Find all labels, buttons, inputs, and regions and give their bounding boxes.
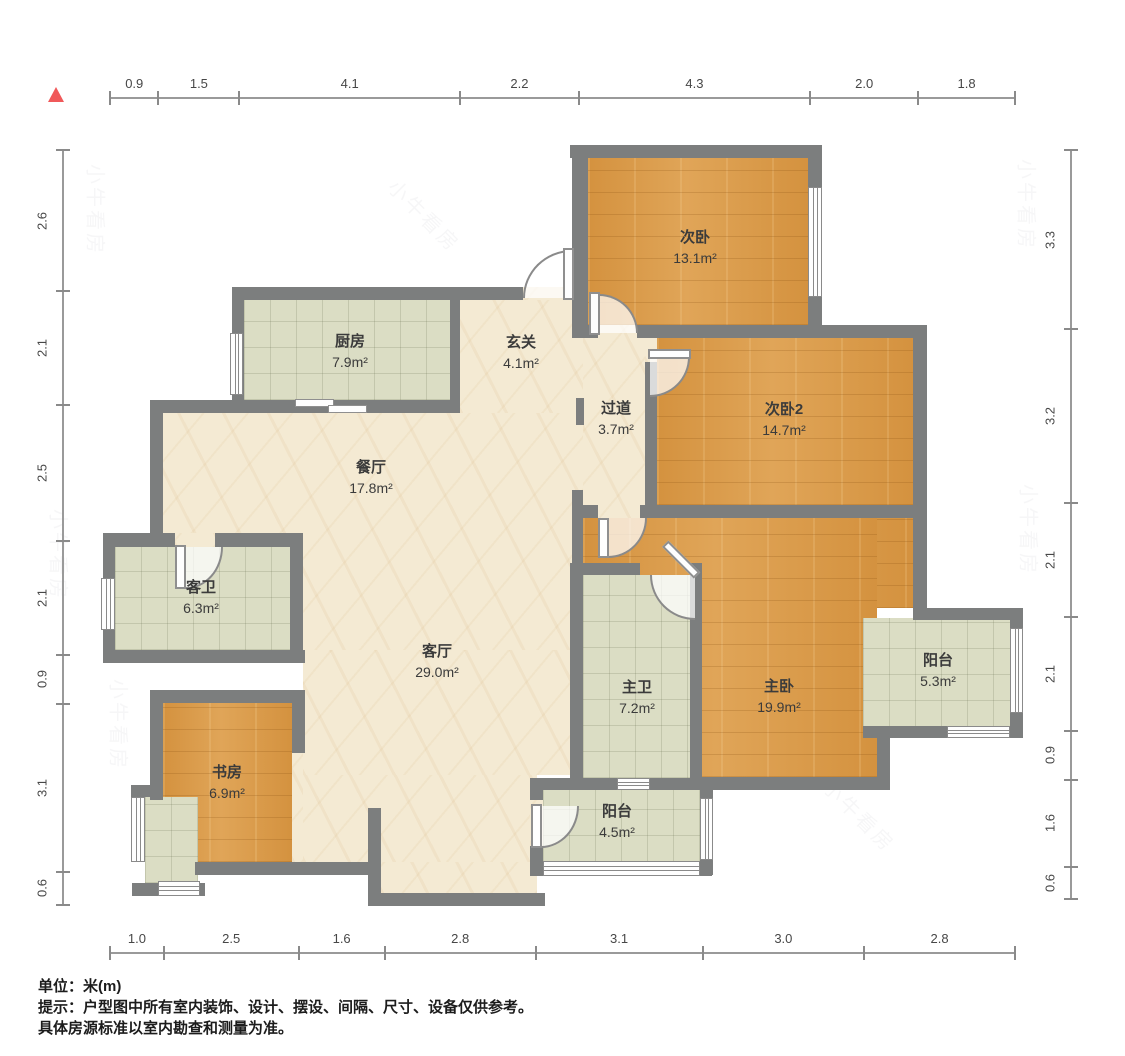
watermark: 小牛看房 xyxy=(83,164,112,256)
watermark: 小牛看房 xyxy=(46,509,75,601)
window xyxy=(947,726,1010,738)
wall-segment xyxy=(913,338,927,620)
ruler-right-dim: 0.6 xyxy=(1043,874,1058,892)
wall-segment xyxy=(576,398,584,425)
ruler-right-dim: 1.6 xyxy=(1043,814,1058,832)
ruler-bottom-dim: 1.0 xyxy=(128,931,146,946)
ruler-top-line xyxy=(110,97,1015,99)
ruler-bottom-dim: 1.6 xyxy=(333,931,351,946)
ruler-right-dim: 2.1 xyxy=(1043,665,1058,683)
wall-segment xyxy=(450,300,460,402)
ruler-right-dim: 2.1 xyxy=(1043,551,1058,569)
wall-segment xyxy=(150,690,305,703)
wall-segment xyxy=(368,808,381,906)
ruler-left-dim: 0.6 xyxy=(35,879,50,897)
ruler-left-dim: 2.1 xyxy=(35,339,50,357)
north-marker-icon xyxy=(48,87,64,102)
wall-segment xyxy=(572,505,598,518)
ruler-bottom-dim: 2.8 xyxy=(931,931,949,946)
ruler-left-dim: 2.5 xyxy=(35,464,50,482)
ruler-tick xyxy=(809,91,811,105)
kitchen-sliding-door xyxy=(328,405,367,413)
watermark: 小牛看房 xyxy=(1016,484,1045,576)
ruler-left-dim: 2.6 xyxy=(35,212,50,230)
ruler-tick xyxy=(56,540,70,542)
ruler-top-dim: 2.0 xyxy=(855,76,873,91)
tile-floor xyxy=(863,618,1010,727)
ruler-tick xyxy=(1064,328,1078,330)
wall-segment xyxy=(150,690,163,800)
window xyxy=(230,333,243,395)
window xyxy=(617,778,650,790)
ruler-tick xyxy=(1064,866,1078,868)
bedroom2-door-leaf xyxy=(589,292,600,335)
wall-segment xyxy=(131,785,163,797)
ruler-tick xyxy=(578,91,580,105)
stone-floor xyxy=(303,775,537,862)
ruler-tick xyxy=(917,91,919,105)
ruler-tick xyxy=(1064,898,1078,900)
wall-segment xyxy=(530,778,543,800)
ruler-tick xyxy=(384,946,386,960)
unit-note: 单位：米(m) xyxy=(38,976,533,997)
stone-floor xyxy=(381,862,537,893)
wall-segment xyxy=(215,533,303,547)
ruler-tick xyxy=(56,703,70,705)
stone-floor xyxy=(292,753,303,862)
stone-floor xyxy=(583,325,645,518)
watermark: 小牛看房 xyxy=(382,172,468,258)
ruler-top-dim: 2.2 xyxy=(510,76,528,91)
ruler-top-dim: 1.8 xyxy=(957,76,975,91)
ruler-tick xyxy=(1064,502,1078,504)
ruler-left-dim: 3.1 xyxy=(35,779,50,797)
ruler-tick xyxy=(1064,779,1078,781)
ruler-tick xyxy=(238,91,240,105)
stone-floor xyxy=(303,650,583,775)
ruler-tick xyxy=(56,654,70,656)
ruler-tick xyxy=(535,946,537,960)
ruler-tick xyxy=(1014,91,1016,105)
floorplan-canvas: 小牛看房小牛看房小牛看房小牛看房小牛看房小牛看房小牛看房小牛看房小牛看房小牛看房… xyxy=(0,0,1125,1056)
window xyxy=(131,797,145,862)
wall-segment xyxy=(290,533,303,650)
tile-floor xyxy=(145,797,198,883)
wall-segment xyxy=(637,325,927,338)
ruler-right-dim: 3.2 xyxy=(1043,407,1058,425)
watermark: 小牛看房 xyxy=(1014,159,1043,251)
bedroom3-door-leaf xyxy=(648,349,691,359)
wall-segment xyxy=(570,563,583,790)
ruler-tick xyxy=(157,91,159,105)
ruler-bottom-dim: 2.5 xyxy=(222,931,240,946)
wall-segment xyxy=(368,893,545,906)
wall-segment xyxy=(103,650,305,663)
ruler-tick xyxy=(702,946,704,960)
ruler-tick xyxy=(109,91,111,105)
stone-floor xyxy=(460,300,588,413)
wall-segment xyxy=(150,402,163,533)
ruler-top-dim: 1.5 xyxy=(190,76,208,91)
watermark: 小牛看房 xyxy=(106,679,135,771)
ruler-bottom-dim: 2.8 xyxy=(451,931,469,946)
ruler-right-line xyxy=(1070,150,1072,899)
tip-line2: 具体房源标准以室内勘查和测量为准。 xyxy=(38,1018,533,1039)
ruler-left-dim: 0.9 xyxy=(35,670,50,688)
ruler-top-dim: 4.3 xyxy=(685,76,703,91)
entry-door-leaf xyxy=(563,248,574,300)
master-bedroom-door-leaf xyxy=(598,518,609,558)
ruler-tick xyxy=(56,404,70,406)
footer-notes: 单位：米(m) 提示：户型图中所有室内装饰、设计、摆设、间隔、尺寸、设备仅供参考… xyxy=(38,976,533,1039)
ruler-top-dim: 0.9 xyxy=(125,76,143,91)
ruler-bottom-line xyxy=(110,952,1015,954)
ruler-bottom-dim: 3.1 xyxy=(610,931,628,946)
wall-segment xyxy=(695,777,890,790)
ruler-left-line xyxy=(62,150,64,905)
wall-segment xyxy=(570,145,822,158)
window xyxy=(808,187,822,297)
ruler-top-dim: 4.1 xyxy=(341,76,359,91)
balcony-door-leaf xyxy=(531,804,542,848)
ruler-bottom-dim: 3.0 xyxy=(774,931,792,946)
wood-floor xyxy=(657,338,913,505)
wall-segment xyxy=(913,608,1023,620)
ruler-tick xyxy=(459,91,461,105)
wall-segment xyxy=(640,505,913,518)
wall-segment xyxy=(232,287,523,300)
ruler-tick xyxy=(56,149,70,151)
tile-floor xyxy=(244,300,450,400)
wall-segment xyxy=(292,690,305,753)
ruler-tick xyxy=(109,946,111,960)
ruler-tick xyxy=(863,946,865,960)
ruler-tick xyxy=(298,946,300,960)
ruler-tick xyxy=(56,871,70,873)
ruler-tick xyxy=(1014,946,1016,960)
ruler-tick xyxy=(163,946,165,960)
wall-segment xyxy=(583,563,640,575)
ruler-tick xyxy=(56,290,70,292)
guest-bath-door-leaf xyxy=(175,545,186,589)
window xyxy=(700,798,713,860)
window xyxy=(1010,628,1023,713)
ruler-tick xyxy=(1064,730,1078,732)
wall-segment xyxy=(572,145,588,338)
ruler-right-dim: 3.3 xyxy=(1043,231,1058,249)
window xyxy=(543,861,700,876)
wall-segment xyxy=(530,846,543,875)
wall-segment xyxy=(195,862,381,875)
ruler-tick xyxy=(1064,149,1078,151)
ruler-tick xyxy=(56,904,70,906)
window xyxy=(158,881,200,896)
ruler-right-dim: 0.9 xyxy=(1043,746,1058,764)
tip-line1: 提示：户型图中所有室内装饰、设计、摆设、间隔、尺寸、设备仅供参考。 xyxy=(38,997,533,1018)
window xyxy=(101,578,115,630)
ruler-tick xyxy=(1064,616,1078,618)
ruler-left-dim: 2.1 xyxy=(35,589,50,607)
